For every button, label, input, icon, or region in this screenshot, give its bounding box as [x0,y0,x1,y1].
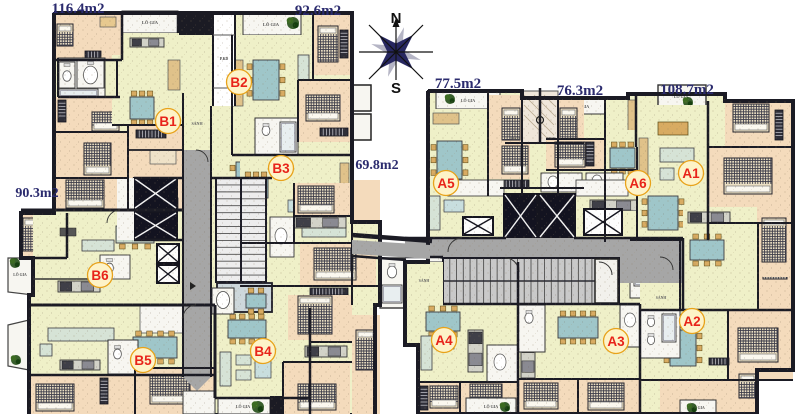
svg-text:A6: A6 [629,176,647,191]
svg-text:B3: B3 [272,161,290,176]
svg-text:S: S [391,80,401,97]
svg-text:B4: B4 [254,344,272,359]
svg-text:108.7m2: 108.7m2 [660,82,714,98]
svg-text:76.3m2: 76.3m2 [557,83,603,99]
svg-text:77.5m2: 77.5m2 [435,76,481,92]
svg-text:92.6m2: 92.6m2 [295,3,341,19]
svg-text:B1: B1 [159,114,177,129]
svg-text:A4: A4 [435,333,453,348]
svg-text:B2: B2 [230,75,247,90]
svg-text:69.8m2: 69.8m2 [355,158,398,173]
svg-text:A3: A3 [607,334,625,349]
svg-text:B5: B5 [134,353,152,368]
svg-text:A1: A1 [682,166,700,181]
svg-text:A5: A5 [437,176,455,191]
svg-text:A2: A2 [683,314,700,329]
svg-text:90.3m2: 90.3m2 [15,186,58,201]
svg-text:LÔ GIA: LÔ GIA [13,272,27,277]
svg-text:N: N [391,10,402,27]
svg-text:116.4m2: 116.4m2 [52,1,105,17]
svg-text:B6: B6 [91,268,109,283]
